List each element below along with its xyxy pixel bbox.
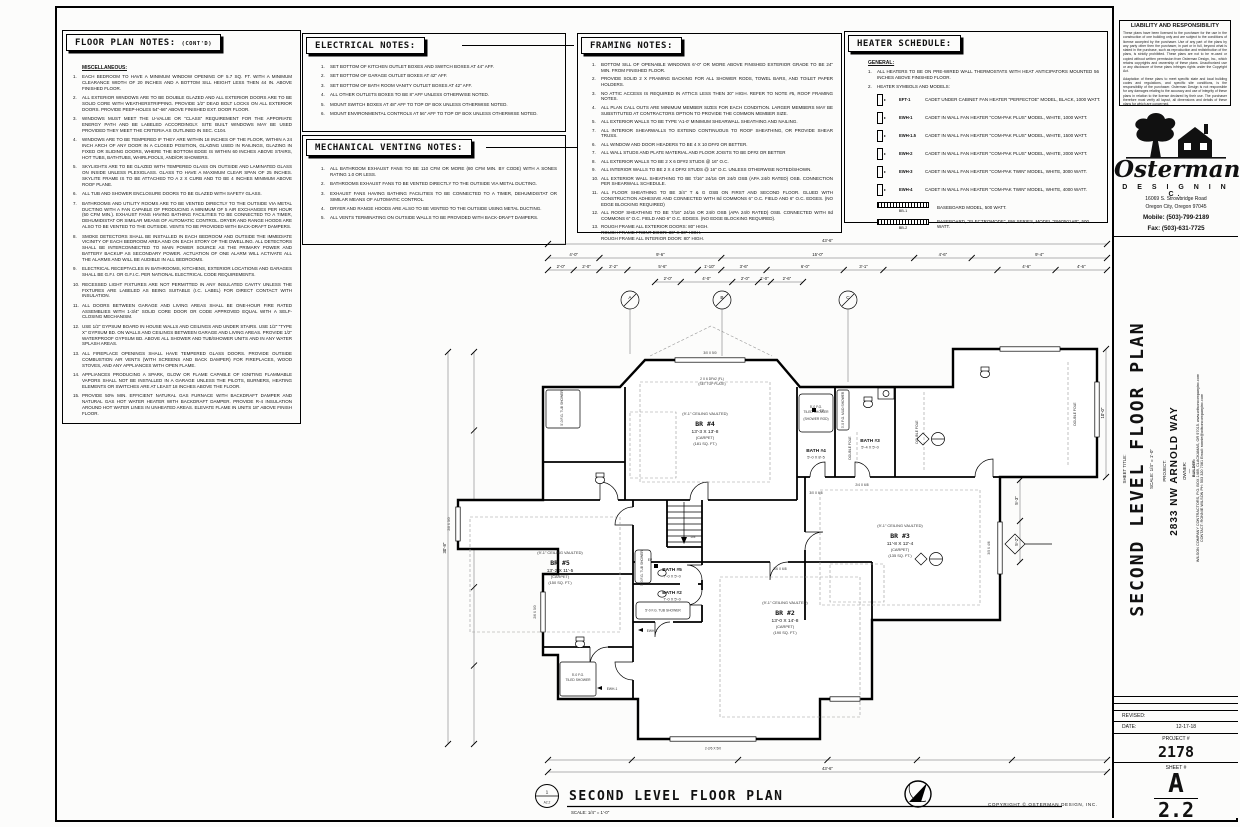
svg-text:(CARPET): (CARPET) xyxy=(891,547,910,552)
svg-text:6'-0": 6'-0" xyxy=(801,264,810,269)
note-item: 8. SMOKE DETECTORS SHALL BE INSTALLED IN… xyxy=(73,234,296,263)
note-item: 10. ALL EXTERIOR WALL SHEATHING TO BE 7/… xyxy=(592,176,837,188)
svg-text:BR #5: BR #5 xyxy=(550,559,570,567)
svg-text:BR #2: BR #2 xyxy=(775,609,795,617)
callout-bubble-c: C xyxy=(839,291,857,382)
svg-text:4'-6": 4'-6" xyxy=(939,252,948,257)
note-item: 5. MOUNT SWITCH BOXES AT 48" AFF TO TOP … xyxy=(321,102,561,108)
project-rotated: PROJECT: 2833 NW ARNOLD WAY OWNER: — xyxy=(1162,306,1192,636)
svg-text:(181 SQ. FT.): (181 SQ. FT.) xyxy=(693,441,717,446)
svg-text:3'-0 F.G. MUD SHOWER: 3'-0 F.G. MUD SHOWER xyxy=(841,391,845,428)
framing-notes-header: FRAMING NOTES: xyxy=(581,37,682,54)
heater-row: EWH-1.5 CADET IN WALL FAN HEATER "COM-PA… xyxy=(877,130,1103,142)
svg-text:TILED SHOWER: TILED SHOWER xyxy=(565,678,591,682)
framing-notes-title: FRAMING NOTES: xyxy=(590,41,673,51)
note-item: 11. ALL FLOOR SHEATHING TO BE 3/4" T & G… xyxy=(592,190,837,208)
date-value: 12-17-18 xyxy=(1176,724,1196,730)
sheet-title-rotated: SHEET TITLE: SECOND LEVEL FLOOR PLAN SCA… xyxy=(1122,244,1154,694)
floor-plan-notes-title: FLOOR PLAN NOTES: xyxy=(75,38,176,48)
svg-text:(135 SQ. FT.): (135 SQ. FT.) xyxy=(888,553,912,558)
mechanical-venting-notes-list: 1. ALL BATHROOM EXHAUST FANS TO BE 110 C… xyxy=(321,166,561,225)
svg-text:3'-6": 3'-6" xyxy=(740,264,749,269)
svg-text:BATH #4: BATH #4 xyxy=(806,448,826,454)
baseboard-heater-symbol-icon: BB-1 xyxy=(877,202,929,213)
liability-paragraph-2: Adaptation of these plans to meet specif… xyxy=(1123,77,1227,107)
svg-text:9'-4": 9'-4" xyxy=(1035,252,1044,257)
heater-row: EWH-1 CADET IN WALL FAN HEATER "COM-PAK … xyxy=(877,112,1103,124)
svg-text:BATH #3: BATH #3 xyxy=(860,438,880,444)
plan-scale: SCALE: 1/4" = 1'-0" xyxy=(571,810,610,815)
heater-schedule-content: GENERAL: 1. ALL HEATERS TO BE ON PRE-WIR… xyxy=(859,60,1103,236)
note-item: 3. SET BOTTOM OF BATH ROOM VANITY OUTLET… xyxy=(321,83,561,89)
note-item: 1. SET BOTTOM OF KITCHEN OUTLET BOXES AN… xyxy=(321,64,561,70)
svg-text:BATH #5: BATH #5 xyxy=(662,567,682,573)
svg-text:(9'-1" CEILING VAULTED): (9'-1" CEILING VAULTED) xyxy=(537,550,583,555)
heater-schedule-box: HEATER SCHEDULE: GENERAL: 1. ALL HEATERS… xyxy=(844,31,1108,223)
svg-text:BATH #2: BATH #2 xyxy=(662,590,682,596)
svg-text:2'-0": 2'-0" xyxy=(741,276,750,281)
note-item: 4. WINDOWS ARE TO BE TEMPERED IF THEY AR… xyxy=(73,137,296,160)
note-item: 1. ALL BATHROOM EXHAUST FANS TO BE 110 C… xyxy=(321,166,561,178)
project-number-label: PROJECT # xyxy=(1114,736,1238,742)
svg-text:(SET TOP PLATE): (SET TOP PLATE) xyxy=(698,382,725,386)
liability-paragraph-1: These plans have been licensed to the pu… xyxy=(1123,31,1227,74)
svg-text:4'-6": 4'-6" xyxy=(1077,264,1086,269)
svg-text:30'-8": 30'-8" xyxy=(442,542,447,553)
svg-text:2'-6": 2'-6" xyxy=(783,276,792,281)
svg-text:2/8 X 5/0: 2/8 X 5/0 xyxy=(447,517,451,530)
address-line-1: 16069 S. Strowbridge Road xyxy=(1114,196,1238,202)
note-item: 13. ALL FIREPLACE OPENINGS SHALL HAVE TE… xyxy=(73,351,296,369)
note-item: 4. DRYER AND RANGE HOODS ARE ALSO TO BE … xyxy=(321,206,561,212)
heater-row: BB-1 BASEBOARD MODEL, 500 WATT. xyxy=(877,202,1103,213)
mechanical-venting-notes-header: MECHANICAL VENTING NOTES: xyxy=(306,139,472,156)
logo-name: Osterman xyxy=(1114,156,1238,183)
heater-schedule-title: HEATER SCHEDULE: xyxy=(857,39,952,49)
note-item: 1. BOTTOM SILL OF OPENABLE WINDOWS 6'-0"… xyxy=(592,62,837,74)
electrical-notes-title: ELECTRICAL NOTES: xyxy=(315,41,416,51)
svg-text:1'-0": 1'-0" xyxy=(760,276,769,281)
wall-heater-symbol-icon xyxy=(877,166,899,178)
dim-row-left-overall: 30'-8" xyxy=(442,349,451,747)
svg-text:(9'-1" CEILING VAULTED): (9'-1" CEILING VAULTED) xyxy=(682,411,728,416)
note-item: 5. SKYLIGHTS ARE TO BE GLAZED WITH TEMPE… xyxy=(73,164,296,187)
heater-row: EWH-4 CADET IN WALL FAN HEATER "COM-PAK … xyxy=(877,184,1103,196)
dim-row-bottom-overall: 43'-6" xyxy=(545,766,1110,775)
wall-heater-symbol-icon xyxy=(877,184,899,196)
heater-row: EFT-1 CADET UNDER CABINET FAN HEATER "PE… xyxy=(877,94,1103,106)
svg-text:BR #3: BR #3 xyxy=(890,532,910,540)
sheet-title-scale: SCALE: 1/4" = 1'-0" xyxy=(1149,244,1154,694)
note-item: 10. RECESSED LIGHT FIXTURES ARE NOT PERM… xyxy=(73,282,296,300)
electrical-notes-box: ELECTRICAL NOTES: 1. SET BOTTOM OF KITCH… xyxy=(302,33,566,132)
heater-row: BB-2 BASEBOARD, "ELECTROMODE", BW SERIES… xyxy=(877,219,1103,230)
revision-row-line xyxy=(1114,710,1238,711)
floor-plan-notes-subtitle: MISCELLANEOUS: xyxy=(82,65,296,71)
svg-text:5'-0 F.G. TUB SHOWER: 5'-0 F.G. TUB SHOWER xyxy=(640,550,644,586)
room-label-bath5: BATH #5 7'-0 X 5'-0 xyxy=(662,567,682,579)
liability-box: LIABILITY AND RESPONSIBILITY These plans… xyxy=(1119,20,1231,106)
note-item: 1. ALL HEATERS TO BE ON PRE-WIRED WALL T… xyxy=(868,69,1103,81)
svg-text:3'-1": 3'-1" xyxy=(859,264,868,269)
electrical-notes-list: 1. SET BOTTOM OF KITCHEN OUTLET BOXES AN… xyxy=(321,64,561,121)
heater-rows: EFT-1 CADET UNDER CABINET FAN HEATER "PE… xyxy=(859,94,1103,230)
date-label: DATE: xyxy=(1122,724,1136,730)
svg-text:2/4 X 6/8: 2/4 X 6/8 xyxy=(855,483,868,487)
svg-text:5'-0 F.G. TUB SHOWER: 5'-0 F.G. TUB SHOWER xyxy=(645,609,681,613)
note-item: 15. PROVIDE 50% MIN. EFFICIENT NATURAL G… xyxy=(73,393,296,416)
title-block: LIABILITY AND RESPONSIBILITY These plans… xyxy=(1112,6,1238,818)
svg-text:(CARPET): (CARPET) xyxy=(551,574,570,579)
svg-text:2'-0": 2'-0" xyxy=(557,264,566,269)
svg-text:1'-10": 1'-10" xyxy=(704,264,715,269)
note-item: 7. BATHROOMS AND UTILITY ROOMS ARE TO BE… xyxy=(73,201,296,230)
svg-text:TILED SHOWER: TILED SHOWER xyxy=(803,410,829,414)
project-number: 2178 xyxy=(1114,743,1238,761)
electrical-notes-header: ELECTRICAL NOTES: xyxy=(306,37,425,54)
note-item: 3. WINDOWS MUST MEET THE U-VALUE OR "CLA… xyxy=(73,116,296,134)
svg-text:3/0 X 5/0: 3/0 X 5/0 xyxy=(703,351,716,355)
svg-text:5'-0 X 8'-5: 5'-0 X 8'-5 xyxy=(807,455,825,460)
svg-text:(190 SQ. FT.): (190 SQ. FT.) xyxy=(773,630,797,635)
wall-heater-symbol-icon xyxy=(877,130,899,142)
note-item: 9. ELECTRICAL RECEPTACLES IN BATHROOMS, … xyxy=(73,266,296,278)
svg-text:4'-0": 4'-0" xyxy=(702,276,711,281)
svg-text:3/0 X 6/8: 3/0 X 6/8 xyxy=(809,491,822,495)
mobile-phone: Mobile: (503)-799-2189 xyxy=(1114,214,1238,221)
revision-row-line xyxy=(1114,703,1238,704)
svg-text:BR #4: BR #4 xyxy=(695,420,715,428)
plan-ref-sheet: A2.2 xyxy=(544,801,551,805)
svg-text:(CARPET): (CARPET) xyxy=(776,624,795,629)
dim-row-top-overall: 43'-6" xyxy=(545,238,1110,247)
address-line-2: Oregon City, Oregon 97045 xyxy=(1114,204,1238,210)
svg-text:10'-0": 10'-0" xyxy=(1100,407,1105,418)
floor-plan-notes-header: FLOOR PLAN NOTES: (CONT'D) xyxy=(66,34,221,51)
dim-row-bottom-2 xyxy=(545,757,1110,763)
svg-text:9'-6": 9'-6" xyxy=(656,252,665,257)
note-item: 1. EACH BEDROOM TO HAVE A MINIMUM WINDOW… xyxy=(73,74,296,92)
svg-text:7'-0 X 5'-0: 7'-0 X 5'-0 xyxy=(663,597,681,602)
floor-plan-notes-title-suffix: (CONT'D) xyxy=(182,41,213,47)
floor-plan-drawing: 43'-6" 4'-0"9'-6"15'-0"4'-6"9'-4" 2'-0"2… xyxy=(440,232,1112,820)
divider xyxy=(1114,762,1238,763)
svg-text:43'-6": 43'-6" xyxy=(822,766,833,771)
baseboard-heater-symbol-icon: BB-2 xyxy=(877,219,929,230)
fax-number: Fax: (503)-631-7725 xyxy=(1114,225,1238,232)
revised-label: REVISED: xyxy=(1122,713,1145,719)
framing-notes-list: 1. BOTTOM SILL OF OPENABLE WINDOWS 6'-0"… xyxy=(592,62,837,244)
svg-text:(9'-1" CEILING VAULTED): (9'-1" CEILING VAULTED) xyxy=(877,523,923,528)
svg-text:(9'-1" CEILING VAULTED): (9'-1" CEILING VAULTED) xyxy=(762,600,808,605)
note-item: 12. USE 1/2" GYPSUM BOARD IN HOUSE WALLS… xyxy=(73,324,296,347)
svg-text:5'-3": 5'-3" xyxy=(1014,496,1019,505)
svg-text:B: B xyxy=(720,295,723,301)
svg-text:2'-0": 2'-0" xyxy=(664,276,673,281)
note-item: 4. ALL PLAN CALL OUTS ARE MINIMUM MEMBER… xyxy=(592,105,837,117)
divider xyxy=(1114,733,1238,734)
svg-text:2 X 6 DF#2 (FL): 2 X 6 DF#2 (FL) xyxy=(700,377,724,381)
svg-text:(CARPET): (CARPET) xyxy=(696,435,715,440)
divider xyxy=(1114,236,1238,237)
note-item: 2. BATHROOMS EXHAUST FANS TO BE VENTED D… xyxy=(321,181,561,187)
svg-text:3/0 X 4/6: 3/0 X 4/6 xyxy=(987,541,991,554)
svg-text:4'-0": 4'-0" xyxy=(569,252,578,257)
note-item: 2. HEATER SYMBOLS AND MODELS: xyxy=(868,84,1103,90)
svg-text:7'-0 X 5'-0: 7'-0 X 5'-0 xyxy=(663,574,681,579)
note-item: 6. ALL TUB AND SHOWER ENCLOSURE DOORS TO… xyxy=(73,191,296,197)
liability-title: LIABILITY AND RESPONSIBILITY xyxy=(1123,23,1227,29)
dim-row-top-2: 4'-0"9'-6"15'-0"4'-6"9'-4" xyxy=(545,252,1110,261)
note-item: 5. ALL EXTERIOR WALLS TO BE TYPE 'A1-0' … xyxy=(592,119,837,125)
divider xyxy=(1114,721,1238,722)
plan-title-block: 1 A2.2 SECOND LEVEL FLOOR PLAN SCALE: 1/… xyxy=(536,781,1063,815)
callout-bubble-a: A xyxy=(621,291,639,354)
svg-text:(150 SQ. FT.): (150 SQ. FT.) xyxy=(548,580,572,585)
builder-line-2: CONTACT: RONNIE WILSON PH: 503 320 7081 … xyxy=(1200,258,1204,678)
note-item: 7. ALL WALL STUDS AND PLATE MATERIAL AND… xyxy=(592,150,837,156)
leader-line xyxy=(462,45,574,46)
note-item: 4. ALL OTHER OUTLETS BOXES TO BE 8" AFF … xyxy=(321,92,561,98)
svg-text:2'-2": 2'-2" xyxy=(609,264,618,269)
floor-plan-notes-box: FLOOR PLAN NOTES: (CONT'D) MISCELLANEOUS… xyxy=(62,30,301,424)
svg-text:2-2/6 X 5/0: 2-2/6 X 5/0 xyxy=(705,747,721,751)
stairs-dn-label: DN xyxy=(691,535,696,539)
room-label-bath2: BATH #2 7'-0 X 5'-0 xyxy=(662,590,682,602)
svg-text:43'-6": 43'-6" xyxy=(822,238,833,243)
note-item: 9. ALL INTERIOR WALLS TO BE 2 X 4 DF#2 S… xyxy=(592,167,837,173)
note-item: 3. NO ATTIC ACCESS IS REQUIRED IN ATTICS… xyxy=(592,91,837,103)
note-item: 11. ALL DOORS BETWEEN GARAGE AND LIVING … xyxy=(73,303,296,321)
svg-text:EWH-1: EWH-1 xyxy=(647,629,658,633)
room-label-bath3: BATH #3 5'-4 X 5'-0 xyxy=(860,438,880,450)
note-item: 3. EXHAUST FANS HAVING BATHING FACILITIE… xyxy=(321,191,561,203)
svg-text:15'-0": 15'-0" xyxy=(812,252,823,257)
wall-heater-symbol-icon xyxy=(877,148,899,160)
svg-text:2/6 X 5/0: 2/6 X 5/0 xyxy=(533,605,537,618)
svg-text:4'-6": 4'-6" xyxy=(1022,264,1031,269)
svg-text:DOUBLE POLE: DOUBLE POLE xyxy=(848,436,852,460)
note-item: 2. PROVIDE SOLID 2 X FRAMING BACKING FOR… xyxy=(592,76,837,88)
svg-text:5'-0 F.G. TUB SHOWER: 5'-0 F.G. TUB SHOWER xyxy=(560,390,564,426)
svg-text:DOUBLE POLE: DOUBLE POLE xyxy=(1073,402,1077,426)
svg-text:5'-6": 5'-6" xyxy=(658,264,667,269)
svg-text:2'-0": 2'-0" xyxy=(582,264,591,269)
dim-row-top-4: 2'-0"4'-0"2'-0"1'-0"2'-6" xyxy=(652,276,806,285)
note-item: 7. ALL INTERIOR SHEARWALLS TO EXTEND CON… xyxy=(592,128,837,140)
heater-row: EWH-3 CADET IN WALL FAN HEATER "COM-PAK … xyxy=(877,166,1103,178)
note-item: 12. ALL ROOF SHEATHING TO BE 7/16" 24/16… xyxy=(592,210,837,222)
plan-title: SECOND LEVEL FLOOR PLAN xyxy=(569,789,784,804)
svg-text:5'-2": 5'-2" xyxy=(1014,537,1019,546)
callout-bubble-b: B xyxy=(713,291,731,356)
heater-general-list: 1. ALL HEATERS TO BE ON PRE-WIRED WALL T… xyxy=(868,69,1103,90)
sheet-title: SECOND LEVEL FLOOR PLAN xyxy=(1127,244,1148,694)
plan-ref-number: 1 xyxy=(546,790,549,796)
wall-heater-symbol-icon xyxy=(877,112,899,124)
svg-text:C: C xyxy=(846,295,850,301)
note-item: 2. SET BOTTOM OF GARAGE OUTLET BOXES AT … xyxy=(321,73,561,79)
framing-notes-box: FRAMING NOTES: 1. BOTTOM SILL OF OPENABL… xyxy=(577,33,842,233)
heater-row: EWH-2 CADET IN WALL FAN HEATER "COM-PAK … xyxy=(877,148,1103,160)
copyright-note: COPYRIGHT © OSTERMAN DESIGN, INC. xyxy=(988,802,1098,807)
drawing-sheet: FLOOR PLAN NOTES: (CONT'D) MISCELLANEOUS… xyxy=(0,0,1240,827)
room-label-bath4: BATH #4 5'-0 X 8'-5 xyxy=(806,448,826,460)
heater-schedule-header: HEATER SCHEDULE: xyxy=(848,35,961,52)
mechanical-venting-notes-box: MECHANICAL VENTING NOTES: 1. ALL BATHROO… xyxy=(302,135,566,245)
floor-plan-notes-list: MISCELLANEOUS: 1. EACH BEDROOM TO HAVE A… xyxy=(73,65,296,420)
note-item: 6. ALL WINDOW AND DOOR HEADERS TO BE 4 X… xyxy=(592,142,837,148)
project-label: PROJECT: xyxy=(1162,306,1167,636)
sheet-letter: A xyxy=(1114,771,1238,797)
note-item: 6. MOUNT ENVIRONMENTAL CONTROLS AT 56" A… xyxy=(321,111,561,117)
builder-rotated: BUILDER: WILSON COMPANY CONTRACTORS, P.O… xyxy=(1192,258,1204,678)
dim-row-right-2: 10'-0" xyxy=(1100,346,1109,480)
mechanical-venting-notes-title: MECHANICAL VENTING NOTES: xyxy=(315,143,463,153)
svg-text:EWH-1: EWH-1 xyxy=(607,687,618,691)
svg-text:5'-0 F.G.: 5'-0 F.G. xyxy=(572,673,584,677)
note-item: 8. ALL EXTERIOR WALLS TO BE 2 X 6 DF#2 S… xyxy=(592,159,837,165)
heater-general-heading: GENERAL: xyxy=(868,60,1103,66)
osterman-logo-icon xyxy=(1122,110,1230,160)
north-arrow-icon xyxy=(905,781,931,807)
sheet-number: 2.2 xyxy=(1114,800,1238,820)
divider xyxy=(1114,696,1238,697)
svg-text:(SHOWER ROD): (SHOWER ROD) xyxy=(803,417,828,421)
note-item: 5. ALL VENTS TERMINATING ON OUTSIDE WALL… xyxy=(321,215,561,221)
project-name: 2833 NW ARNOLD WAY xyxy=(1169,306,1180,636)
dim-row-top-3: 2'-0"2'-0"2'-2"5'-6"1'-10"3'-6"6'-0"3'-1… xyxy=(545,264,1110,273)
note-item: 2. ALL EXTERIOR WINDOWS ARE TO BE DOUBLE… xyxy=(73,95,296,113)
wall-heater-symbol-icon xyxy=(877,94,899,106)
note-item: 14. APPLIANCES PRODUCING A SPARK, GLOW O… xyxy=(73,372,296,390)
dim-row-right-1: 5'-3"5'-2" xyxy=(1014,477,1023,565)
svg-text:5'-4 X 5'-0: 5'-4 X 5'-0 xyxy=(861,445,879,450)
